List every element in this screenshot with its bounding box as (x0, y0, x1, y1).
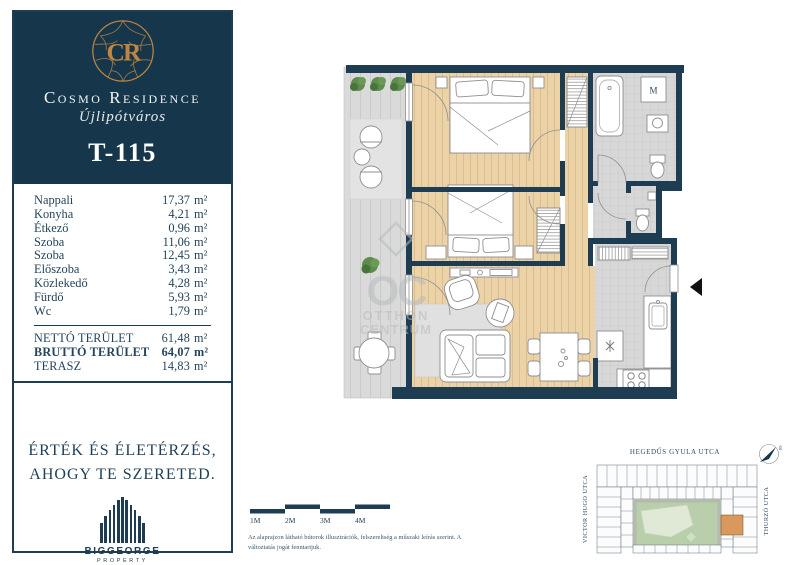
total-unit: m² (190, 359, 211, 373)
total-unit: m² (190, 331, 211, 345)
developer-subtitle: PROPERTY (97, 558, 148, 564)
developer-logo: BIGGEORGE PROPERTY (84, 497, 160, 564)
room-unit: m² (190, 222, 211, 236)
room-unit: m² (190, 277, 211, 291)
street-label-left: VICTOR HUGO UTCA (582, 475, 589, 543)
scale-bar: 1M 2M 3M 4M (248, 501, 398, 527)
entrance-arrow-icon (690, 278, 702, 296)
total-row: TERASZ14,83m² (34, 359, 211, 373)
area-row: Étkező0,96m² (34, 222, 211, 236)
area-row: Közlekedő4,28m² (34, 277, 211, 291)
unit-title: T-115 (88, 138, 157, 168)
brand-district: Újlipótváros (79, 109, 166, 126)
watermark-line1: OTTHON (363, 308, 430, 323)
area-row: Fürdő5,93m² (34, 291, 211, 305)
total-value: 64,07 (162, 345, 190, 359)
terrace (344, 67, 408, 398)
room-area: 0,96 (168, 222, 190, 236)
plant-icon (350, 77, 406, 91)
street-label-top: HEGEDŰS GYULA UTCA (630, 448, 720, 456)
highlighted-unit (721, 515, 743, 535)
room-area: 12,45 (162, 249, 190, 263)
room-name: Fürdő (34, 291, 168, 305)
room-name: Konyha (34, 208, 168, 222)
room-name: Szoba (34, 249, 162, 263)
brand-name: Cosmo Residence (44, 88, 201, 108)
cosmo-residence-logo-icon: CR (90, 18, 156, 84)
biggeorge-building-icon (100, 497, 144, 543)
room-name: Étkező (34, 222, 168, 236)
watermark-monogram: OC (367, 267, 428, 314)
room-name: Szoba (34, 236, 163, 250)
developer-name: BIGGEORGE (84, 546, 160, 557)
room-name: Közlekedő (34, 277, 168, 291)
brochure-page: CR Cosmo Residence Újlipótváros T-115 Na… (0, 0, 800, 565)
tagline: ÉRTÉK ÉS ÉLETÉRZÉS, AHOGY TE SZERETED. (28, 439, 216, 487)
washing-machine-label: M (649, 86, 657, 96)
room-unit: m² (190, 305, 211, 319)
room-area: 5,93 (168, 291, 190, 305)
room-area: 4,28 (168, 277, 190, 291)
room-area: 3,43 (168, 263, 190, 277)
room-area: 17,37 (162, 194, 190, 208)
area-row: Nappali17,37m² (34, 194, 211, 208)
scale-label: 1M (250, 516, 261, 525)
area-row: Konyha4,21m² (34, 208, 211, 222)
sidebar: CR Cosmo Residence Újlipótváros T-115 Na… (12, 10, 233, 553)
total-unit: m² (190, 345, 211, 359)
area-row: Szoba12,45m² (34, 249, 211, 263)
entrance-door (670, 265, 678, 292)
scale-label: 3M (320, 516, 331, 525)
corner-sink-icon (648, 192, 656, 200)
room-unit: m² (190, 263, 211, 277)
site-map: É HEGEDŰS GYULA UTCA VICTOR HUGO UTCA TH… (575, 441, 800, 565)
scale-label: 4M (355, 516, 366, 525)
area-list: Nappali17,37m² Konyha4,21m² Étkező0,96m²… (14, 184, 231, 383)
room-unit: m² (190, 208, 211, 222)
room-unit: m² (190, 249, 211, 263)
logo-monogram: CR (106, 37, 141, 66)
tagline-box: ÉRTÉK ÉS ÉLETÉRZÉS, AHOGY TE SZERETED. B… (14, 383, 231, 551)
bedroom-1-furniture (436, 77, 544, 153)
room-name: Nappali (34, 194, 162, 208)
room-area: 4,21 (168, 208, 190, 222)
area-row: Előszoba3,43m² (34, 263, 211, 277)
watermark-line2: CENTRUM (360, 322, 432, 337)
total-row: NETTÓ TERÜLET61,48m² (34, 331, 211, 345)
room-area: 11,06 (163, 236, 190, 250)
tagline-line2: AHOGY TE SZERETED. (28, 463, 216, 487)
dining-table-icon (540, 333, 578, 381)
total-row: BRUTTÓ TERÜLET64,07m² (34, 345, 211, 359)
sidebar-header: CR Cosmo Residence Újlipótváros T-115 (14, 12, 231, 184)
totals-divider (34, 325, 211, 326)
room-area: 1,79 (168, 305, 190, 319)
tagline-line1: ÉRTÉK ÉS ÉLETÉRZÉS, (28, 439, 216, 463)
floor-plan: M (330, 53, 710, 418)
disclaimer-text: Az alaprajzon látható bútorok illusztrác… (248, 533, 476, 553)
room-name: Előszoba (34, 263, 168, 277)
room-unit: m² (190, 291, 211, 305)
scale-label: 2M (285, 516, 296, 525)
compass-icon: É (760, 444, 784, 464)
room-unit: m² (190, 236, 211, 250)
total-label: TERASZ (34, 359, 162, 373)
area-row: Wc1,79m² (34, 305, 211, 319)
compass-label: É (779, 444, 783, 452)
total-label: NETTÓ TERÜLET (34, 331, 162, 345)
hall-wardrobe-icon (567, 77, 587, 127)
total-label: BRUTTÓ TERÜLET (34, 345, 162, 359)
total-value: 61,48 (162, 331, 190, 345)
area-row: Szoba11,06m² (34, 236, 211, 250)
room-name: Wc (34, 305, 168, 319)
total-value: 14,83 (162, 359, 190, 373)
room-unit: m² (190, 194, 211, 208)
street-label-right: THURZÓ UTCA (762, 487, 770, 536)
